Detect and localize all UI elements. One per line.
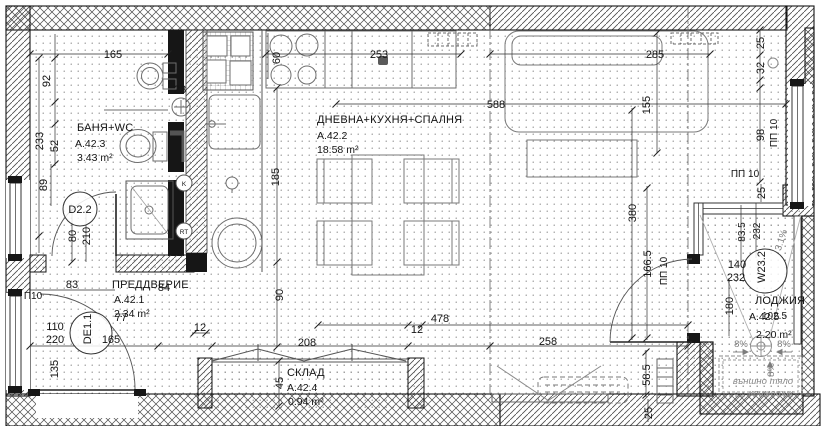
room-label-bath: БАНЯ+WC xyxy=(77,122,133,134)
dim-label: 155 xyxy=(641,96,653,114)
ac-unit-label-2: климатик xyxy=(749,388,794,399)
dim-label: 98 xyxy=(755,129,767,141)
room-label-storage: СКЛАД xyxy=(287,367,325,379)
dim-label: 232 xyxy=(727,272,745,284)
loggia-bottom-pier-insul xyxy=(700,342,713,396)
slope-label: 8% xyxy=(766,363,777,377)
wall-corner-block xyxy=(186,253,207,272)
room-area-living: 18.58 m² xyxy=(317,144,359,156)
dim-label: 25 xyxy=(755,37,767,49)
loggia-window-tag: W23.2 xyxy=(756,251,768,283)
bath-south-wall-a xyxy=(30,255,46,272)
dim-label: 102.5 xyxy=(762,311,787,322)
dim-label: 110 xyxy=(46,321,64,333)
dim-label: 233 xyxy=(34,132,46,150)
panel-label: ПП 10 xyxy=(659,256,670,285)
dim-label: 165 xyxy=(104,49,122,61)
storage-pier-right xyxy=(408,358,424,408)
dim-label: 83 xyxy=(66,279,78,291)
room-label-living: ДНЕВНА+КУХНЯ+СПАЛНЯ xyxy=(317,114,462,126)
room-code-hall: A.42.1 xyxy=(114,294,145,306)
dim-label: 588 xyxy=(487,99,505,111)
dim-label: 77 xyxy=(115,312,127,324)
room-area-bath: 3.43 m² xyxy=(77,152,113,164)
dim-label: 478 xyxy=(431,313,449,325)
thermostat-rt-label: RT xyxy=(180,229,189,236)
dim-label: 32 xyxy=(755,62,767,74)
room-code-living: A.42.2 xyxy=(317,130,348,142)
dim-label: 220 xyxy=(46,334,64,346)
dim-label: 84 xyxy=(158,282,170,294)
panel-label: ПП 10 xyxy=(769,118,780,147)
dim-label: 232 xyxy=(752,222,763,239)
panel-label: ПП 10 xyxy=(731,169,760,180)
dim-label: 60 xyxy=(271,52,283,64)
dim-label: 58.5 xyxy=(641,364,653,385)
dim-label: 80 xyxy=(67,230,79,242)
bath-door-tag: D2.2 xyxy=(68,204,91,216)
floor-plan: БАНЯ+WC A.42.3 3.43 m² ДНЕВНА+КУХНЯ+СПАЛ… xyxy=(0,0,821,426)
dim-label: 25 xyxy=(756,187,768,199)
room-area-storage: 0.94 m² xyxy=(288,396,324,408)
entry-door-tag: DE1.1 xyxy=(82,314,94,345)
dim-label: 165 xyxy=(102,334,120,346)
dim-label: 12 xyxy=(411,324,423,336)
dim-label: 180 xyxy=(724,297,736,315)
bath-south-wall-b xyxy=(116,255,194,272)
switch-k-label: K xyxy=(182,181,187,188)
dim-label: 135 xyxy=(49,360,61,378)
vent-shaft-3 xyxy=(207,60,226,83)
dim-label: 52 xyxy=(49,140,61,152)
storage-pier-left xyxy=(198,358,212,408)
dim-label: 258 xyxy=(539,336,557,348)
room-label-hall: ПРЕДДВЕРИЕ xyxy=(112,279,189,291)
slope-label: 8% xyxy=(734,339,748,350)
dim-label: 45 xyxy=(274,377,286,389)
dim-label: 185 xyxy=(270,168,282,186)
dim-label: 166.5 xyxy=(642,250,654,278)
bath-wall-c xyxy=(168,180,184,256)
dim-label: 210 xyxy=(81,227,93,245)
vent-shaft-4 xyxy=(230,61,251,85)
room-code-bath: A.42.3 xyxy=(75,138,106,150)
room-code-storage: A.42.4 xyxy=(287,382,318,394)
room-label-loggia: ЛОДЖИЯ xyxy=(755,295,805,307)
dim-label: 208 xyxy=(298,337,316,349)
ac-unit-label-1: външно тяло xyxy=(733,376,793,387)
slope-label: 8% xyxy=(777,339,791,350)
dim-label: 253 xyxy=(370,49,388,61)
dim-label: 92 xyxy=(41,75,53,87)
dim-label: 140 xyxy=(728,259,746,271)
dim-label: 23 xyxy=(174,84,186,96)
dim-label: 83.5 xyxy=(737,222,748,242)
dim-label: 285 xyxy=(646,49,664,61)
dim-label: 90 xyxy=(274,289,286,301)
top-wall-left xyxy=(6,6,490,30)
panel-label: П10 xyxy=(24,291,43,302)
floor-plan-drawing: БАНЯ+WC A.42.3 3.43 m² ДНЕВНА+КУХНЯ+СПАЛ… xyxy=(0,0,821,426)
dim-label: 12 xyxy=(194,322,206,334)
loggia-side-glazing xyxy=(794,216,801,344)
top-wall-right xyxy=(490,6,787,30)
dim-label: 89 xyxy=(38,179,50,191)
vent-shaft-1 xyxy=(207,36,227,56)
vent-shaft-2 xyxy=(231,36,250,56)
dim-label: 380 xyxy=(627,204,639,222)
dim-label: 25 xyxy=(643,407,655,419)
